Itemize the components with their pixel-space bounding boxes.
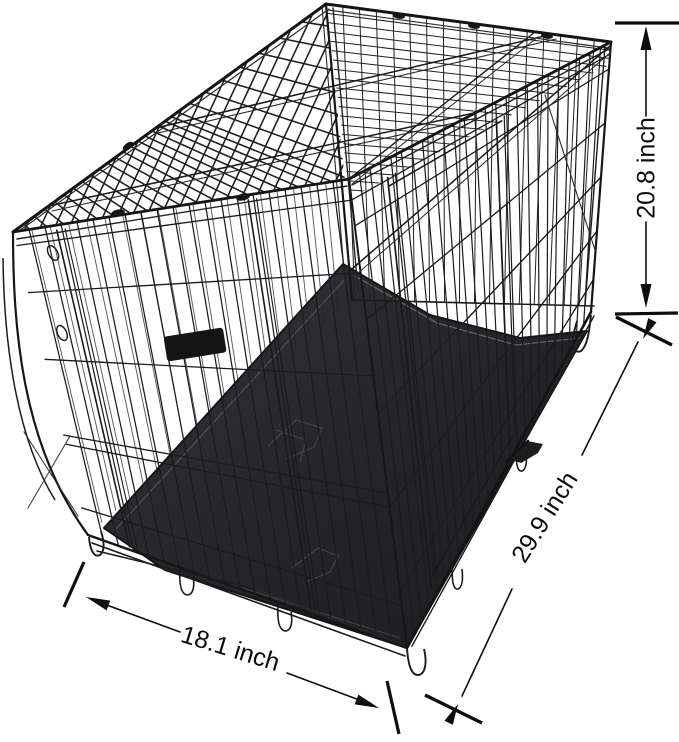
svg-text:20.8 inch: 20.8 inch: [633, 117, 661, 218]
svg-text:29.9 inch: 29.9 inch: [506, 467, 584, 568]
svg-text:18.1 inch: 18.1 inch: [178, 620, 283, 676]
